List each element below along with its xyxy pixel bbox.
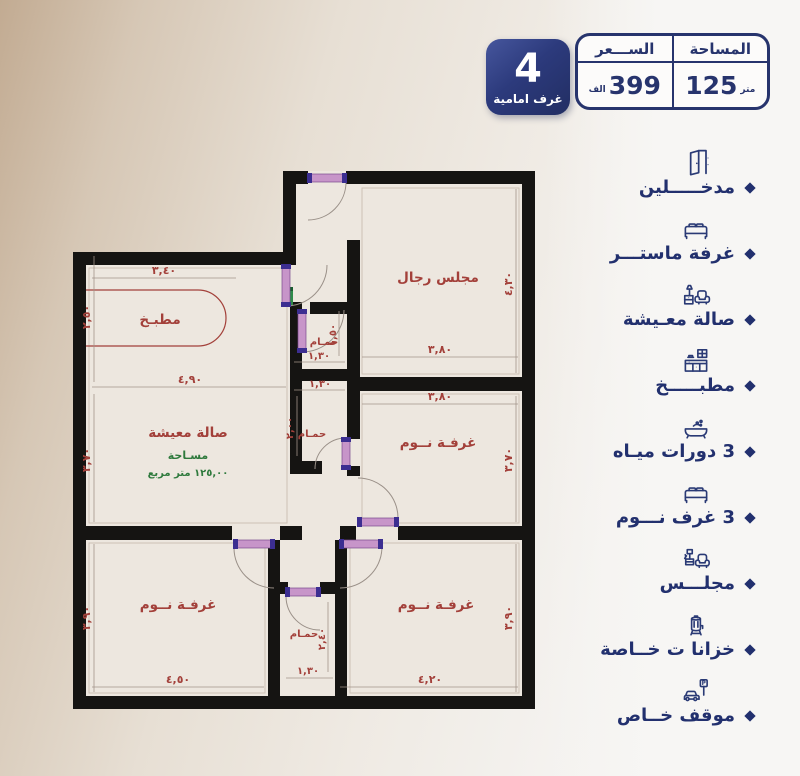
- dim-bath-mid-h: ٢,٠٠: [285, 417, 296, 439]
- area-header: المساحة: [674, 36, 768, 63]
- feature-bathrooms: 3 دورات ميـاه: [585, 405, 780, 471]
- bullet-diamond: [744, 248, 755, 259]
- living-area-label: مسـاحة: [168, 449, 209, 462]
- feature-parking: P موقف خــاص: [585, 669, 780, 735]
- area-value: متر 125: [674, 63, 768, 107]
- badge-label: غرف امامية: [493, 92, 562, 106]
- price-value: 399 الف: [578, 63, 672, 107]
- feature-entrances: مدخـــــلين: [585, 141, 780, 207]
- feature-label: 3 غرف نـــوم: [616, 509, 735, 527]
- majlis-icon: [598, 537, 793, 574]
- dim-bath-top-h: ١,٥٠: [328, 324, 339, 346]
- room-label-bed-bottom-left: غرفـة نــوم: [140, 597, 217, 613]
- price-header: الســـعر: [578, 36, 672, 63]
- feature-label: موقف خــاص: [617, 707, 735, 725]
- dim-bed-right-h: ٣,٧٠: [502, 448, 515, 472]
- dim-bath-mid-w: ١,٣٠: [309, 379, 331, 390]
- bed-bottom-left-door: [233, 539, 275, 549]
- price-number: 399: [609, 73, 661, 98]
- dim-majlis-w: ٣,٨٠: [428, 343, 452, 356]
- front-rooms-badge: 4 غرف امامية: [486, 39, 570, 115]
- room-label-living: صالة معيشة: [148, 425, 227, 441]
- entrance-door: [307, 173, 347, 183]
- dim-majlis-h: ٤,٣٠: [502, 272, 515, 296]
- bullet-diamond: [744, 380, 755, 391]
- bath-mid-door: [341, 437, 351, 470]
- bed-bottom-right-door: [339, 539, 383, 549]
- feature-label: مطبـــــخ: [655, 377, 735, 395]
- price-unit: الف: [589, 85, 606, 95]
- feature-master-room: غرفة ماستـــر: [585, 207, 780, 273]
- stats-table: المساحة متر 125 الســـعر 399 الف: [575, 33, 770, 110]
- bed-right-door: [357, 517, 399, 527]
- feature-label: خزانا ت خــاصة: [600, 641, 735, 659]
- bath-top-door: [297, 309, 307, 353]
- floor-plan: مطبـخ ٣,٤٠ ٢,٥٠ مجلس رجال ٣,٨٠ ٤,٣٠ صالة…: [40, 144, 545, 719]
- living-room-icon: [598, 273, 793, 310]
- bath-bottom-door: [285, 587, 321, 597]
- dim-bath-bottom-h: ٢,٤٠: [317, 628, 328, 650]
- room-label-bath-mid: حمـام: [298, 429, 326, 440]
- room-label-bed-bottom-right: غرفـة نــوم: [398, 597, 475, 613]
- parking-icon: P: [598, 669, 793, 706]
- bullet-diamond: [744, 182, 755, 193]
- feature-water-tanks: خزانا ت خــاصة: [585, 603, 780, 669]
- dim-living-h: ٣,٧٠: [80, 448, 93, 472]
- bullet-diamond: [744, 710, 755, 721]
- dim-bath-bottom-w: ١,٣٠: [297, 666, 319, 677]
- feature-label: 3 دورات ميـاه: [613, 443, 735, 461]
- area-unit: متر: [740, 85, 755, 95]
- feature-label: مدخـــــلين: [639, 179, 735, 197]
- kitchen-icon: [598, 339, 793, 376]
- feature-kitchen: مطبـــــخ: [585, 339, 780, 405]
- area-column: المساحة متر 125: [672, 36, 768, 107]
- door-icon: [598, 141, 793, 178]
- bed-icon: [598, 471, 793, 508]
- badge-number: 4: [514, 49, 542, 89]
- dim-living-w: ٤,٩٠: [178, 373, 202, 386]
- room-label-majlis-men: مجلس رجال: [397, 270, 479, 286]
- dim-kitchen-h: ٢,٥٠: [80, 305, 93, 329]
- dim-bath-top-w: ١,٣٠: [308, 351, 330, 362]
- feature-living-hall: صالة معـيشة: [585, 273, 780, 339]
- bullet-diamond: [744, 578, 755, 589]
- feature-label: غرفة ماستـــر: [610, 245, 735, 263]
- bullet-diamond: [744, 314, 755, 325]
- bullet-diamond: [744, 512, 755, 523]
- dim-bed-br-h: ٣,٩٠: [502, 606, 515, 630]
- dim-kitchen-w: ٣,٤٠: [152, 264, 176, 277]
- price-column: الســـعر 399 الف: [578, 36, 672, 107]
- feature-label: مجلـــس: [660, 575, 735, 593]
- bullet-diamond: [744, 644, 755, 655]
- dim-bed-bl-w: ٤,٥٠: [166, 673, 190, 686]
- water-tank-icon: [598, 603, 793, 640]
- living-area-value: ١٢٥,٠٠ متر مربع: [148, 468, 229, 479]
- area-number: 125: [685, 73, 737, 98]
- feature-majlis: مجلـــس: [585, 537, 780, 603]
- feature-label: صالة معـيشة: [623, 311, 735, 329]
- bathtub-icon: [598, 405, 793, 442]
- dim-bed-br-w: ٤,٢٠: [418, 673, 442, 686]
- room-label-bath-bottom: حمـام: [290, 629, 318, 640]
- hall-door: [281, 264, 291, 307]
- dim-bed-bl-h: ٣,٩٠: [80, 606, 93, 630]
- dim-bed-right-w: ٣,٨٠: [428, 390, 452, 403]
- room-label-kitchen: مطبـخ: [139, 312, 180, 328]
- features-list: مدخـــــلين غرفة ماستـــر: [585, 141, 780, 735]
- bed-icon: [598, 207, 793, 244]
- feature-bedrooms: 3 غرف نـــوم: [585, 471, 780, 537]
- bullet-diamond: [744, 446, 755, 457]
- room-label-bed-right: غرفـة نــوم: [400, 435, 477, 451]
